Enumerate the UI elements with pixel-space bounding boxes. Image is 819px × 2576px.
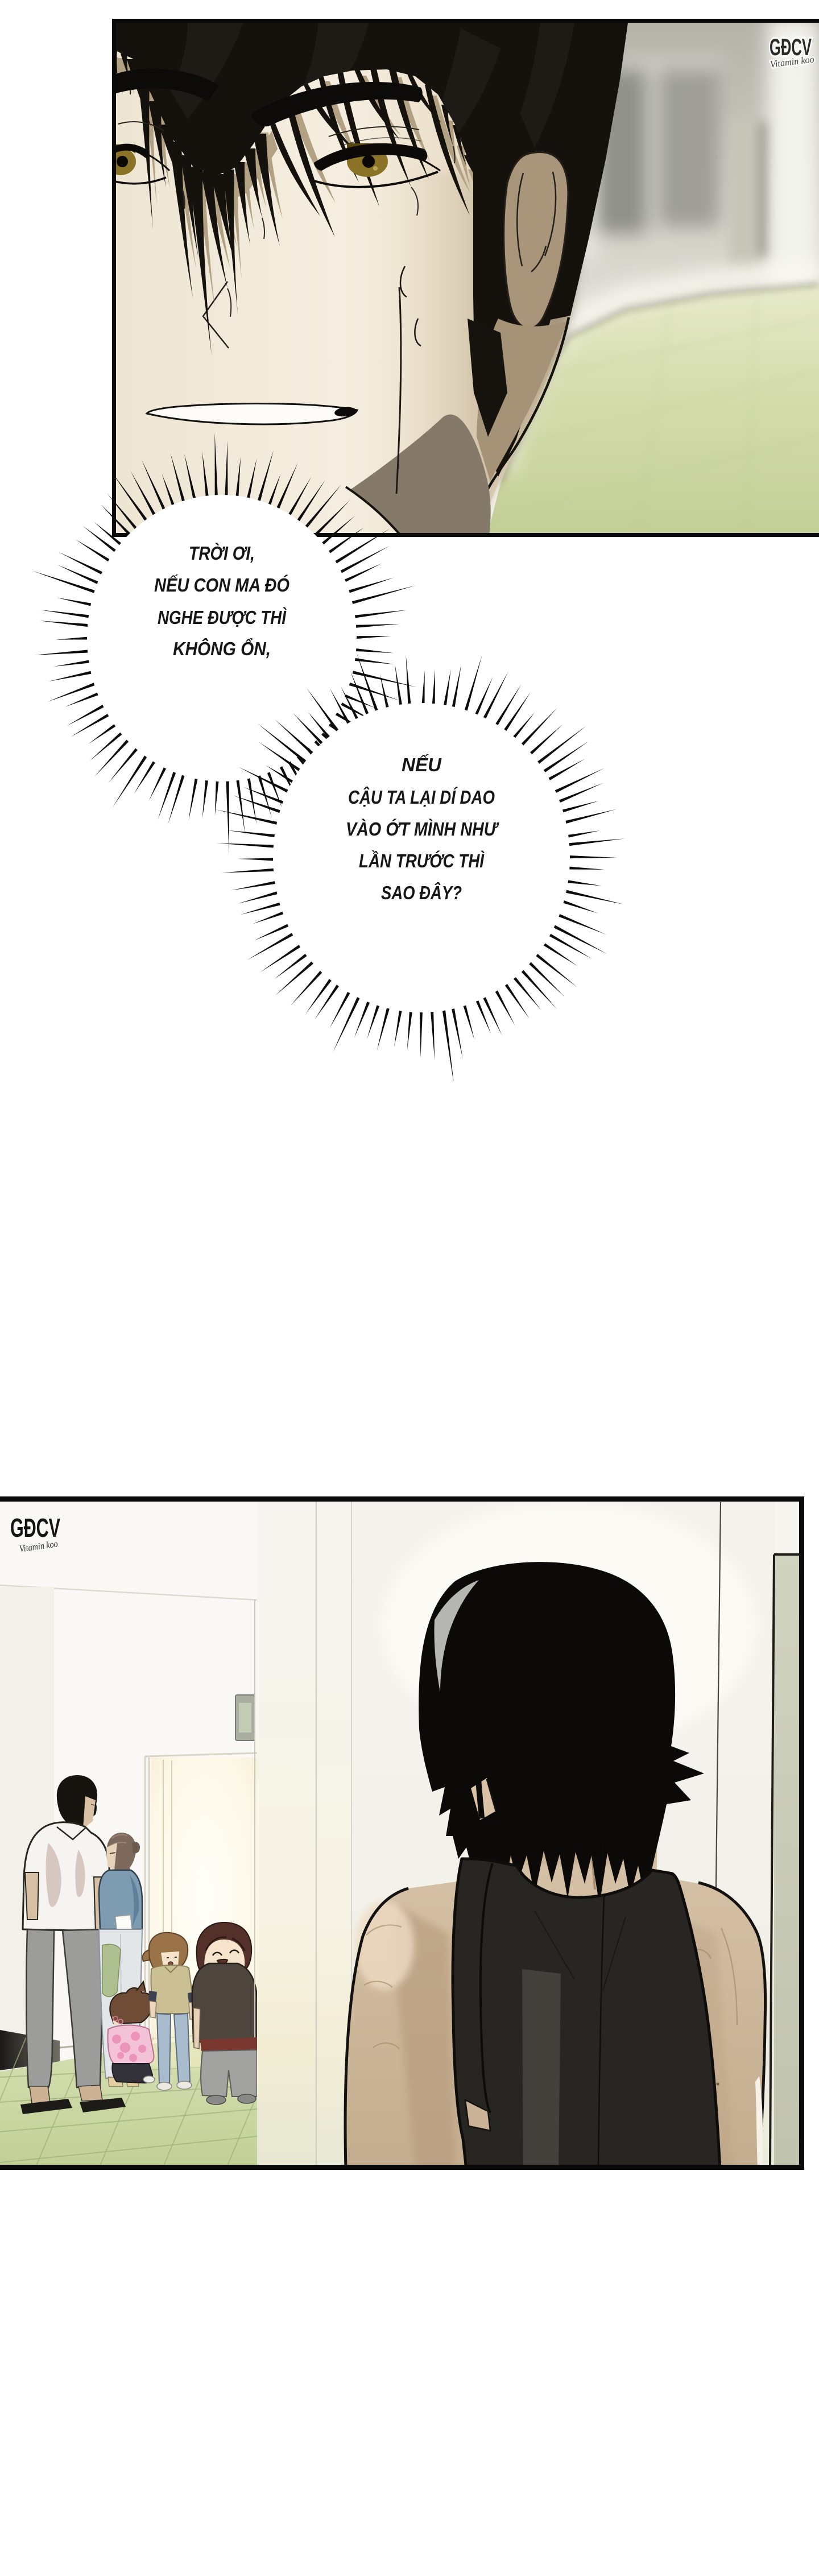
svg-text:LẦN TRƯỚC THÌ: LẦN TRƯỚC THÌ [359,850,485,871]
svg-text:NẾU: NẾU [402,754,442,775]
svg-text:GĐCV: GĐCV [10,1513,60,1543]
svg-text:VÀO ỚT MÌNH NHƯ: VÀO ỚT MÌNH NHƯ [346,818,499,840]
svg-text:SAO ĐÂY?: SAO ĐÂY? [381,882,462,903]
svg-text:KHÔNG ỔN,: KHÔNG ỔN, [173,638,271,659]
svg-text:NGHE ĐƯỢC THÌ: NGHE ĐƯỢC THÌ [158,607,287,628]
svg-text:NẾU CON MA ĐÓ: NẾU CON MA ĐÓ [154,574,289,596]
svg-text:TRỜI ƠI,: TRỜI ƠI, [189,543,255,564]
svg-text:CẬU TA LẠI DÍ DAO: CẬU TA LẠI DÍ DAO [348,787,495,808]
